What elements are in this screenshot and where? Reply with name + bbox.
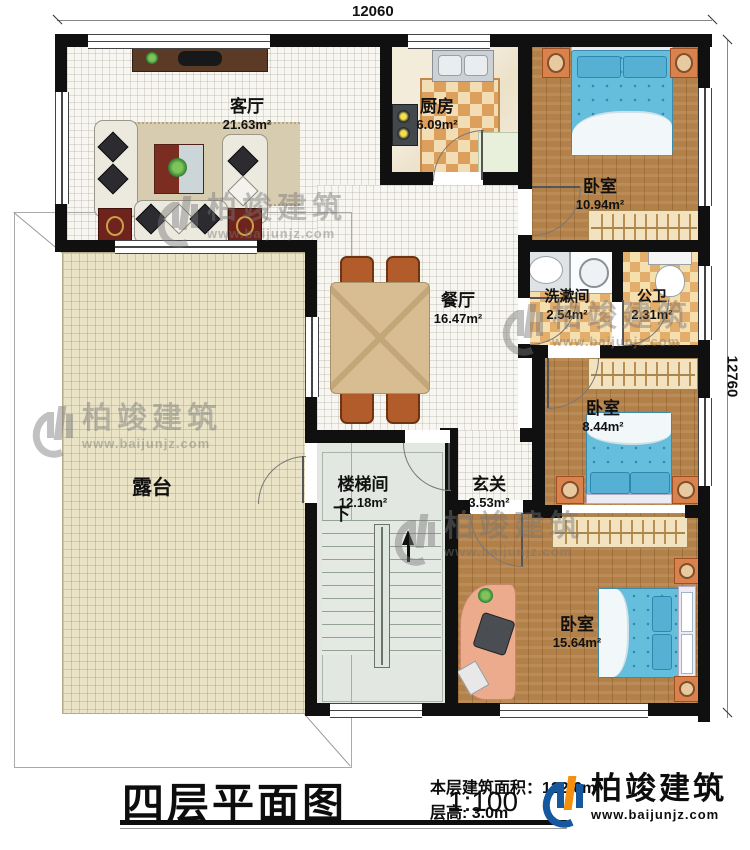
- dimension-value-right: 12760: [724, 347, 741, 407]
- bed-sheet-fold: [599, 589, 629, 677]
- watermark-text: 柏竣建筑 www.baijunjz.com: [552, 302, 692, 349]
- nightstand: [674, 676, 700, 702]
- title-underline-thin: [120, 828, 567, 829]
- watermark-name: 柏竣建筑: [552, 302, 692, 332]
- wardrobe: [588, 210, 700, 244]
- window: [698, 266, 712, 340]
- window: [408, 34, 490, 49]
- washing-machine-door: [579, 258, 609, 288]
- brand-logo-icon: [543, 772, 585, 822]
- watermark-logo-icon: [158, 192, 200, 242]
- room-label-kitchen: 厨房 6.09m²: [416, 96, 457, 134]
- dining-table: [330, 282, 430, 394]
- room-area: 10.94m²: [576, 197, 624, 213]
- room-label-foyer: 玄关 3.53m²: [468, 474, 509, 512]
- bed-sheet-fold: [572, 111, 672, 155]
- watermark-logo-icon: [503, 300, 545, 350]
- wall: [685, 505, 710, 518]
- room-name: 客厅: [223, 96, 271, 117]
- nightstand: [670, 48, 698, 78]
- headboard-panel: [681, 592, 693, 632]
- room-label-terrace: 露台: [132, 476, 172, 501]
- watermark-url: www.baijunjz.com: [444, 544, 584, 559]
- brand-logo: 柏竣建筑 www.baijunjz.com: [543, 772, 727, 822]
- window: [330, 703, 422, 718]
- brand-name: 柏竣建筑: [591, 773, 727, 804]
- watermark-url: www.baijunjz.com: [552, 334, 692, 349]
- plant: [168, 158, 187, 177]
- pillow: [630, 472, 670, 494]
- room-label-bedroom3: 卧室 15.64m²: [553, 614, 601, 652]
- brand-text: 柏竣建筑 www.baijunjz.com: [591, 773, 727, 822]
- nightstand: [556, 476, 584, 504]
- stove-burner: [397, 127, 410, 140]
- wall: [532, 428, 545, 513]
- watermark-text: 柏竣建筑 www.baijunjz.com: [82, 404, 222, 451]
- nightstand: [674, 558, 700, 584]
- watermark: 柏竣建筑 www.baijunjz.com: [503, 300, 692, 350]
- door-opening: [305, 443, 317, 503]
- wardrobe: [588, 358, 698, 390]
- room-area: 8.44m²: [582, 419, 623, 435]
- wall: [380, 34, 392, 185]
- plant: [478, 588, 493, 603]
- stove-burner: [397, 110, 410, 123]
- watermark-name: 柏竣建筑: [444, 512, 584, 542]
- plant: [146, 52, 158, 64]
- wall: [305, 430, 405, 443]
- watermark: 柏竣建筑 www.baijunjz.com: [33, 402, 222, 452]
- room-area: 16.47m²: [434, 311, 482, 327]
- room-name: 卧室: [582, 398, 623, 419]
- window: [500, 703, 648, 718]
- floor-height-text: 层高: 3.0m: [430, 799, 508, 823]
- room-name: 露台: [132, 476, 172, 501]
- door-opening: [405, 430, 450, 443]
- watermark-name: 柏竣建筑: [207, 194, 347, 224]
- bathroom-sink: [529, 256, 563, 284]
- room-name: 卧室: [553, 614, 601, 635]
- nightstand: [672, 476, 700, 504]
- pillow: [652, 634, 672, 670]
- window: [88, 34, 270, 49]
- watermark: 柏竣建筑 www.baijunjz.com: [395, 510, 584, 560]
- stairs-down-label: 下: [333, 500, 350, 525]
- window: [305, 317, 319, 397]
- watermark-text: 柏竣建筑 www.baijunjz.com: [444, 512, 584, 559]
- dimension-line-top: [57, 20, 712, 21]
- room-area: 6.09m²: [416, 117, 457, 133]
- headboard-panel: [681, 634, 693, 674]
- brand-url: www.baijunjz.com: [591, 807, 727, 822]
- watermark-url: www.baijunjz.com: [82, 436, 222, 451]
- watermark-name: 柏竣建筑: [82, 404, 222, 434]
- door-leaf: [448, 443, 450, 490]
- room-label-living: 客厅 21.63m²: [223, 96, 271, 134]
- window: [698, 398, 712, 486]
- door-opening: [518, 189, 532, 235]
- room-name: 楼梯间: [338, 474, 389, 495]
- kitchen-counter: [478, 132, 520, 174]
- room-name: 餐厅: [434, 290, 482, 311]
- window: [55, 92, 69, 204]
- room-label-bedroom2: 卧室 8.44m²: [582, 398, 623, 436]
- window: [698, 88, 712, 206]
- pillow: [623, 56, 667, 78]
- room-area: 21.63m²: [223, 117, 271, 133]
- room-label-dining: 餐厅 16.47m²: [434, 290, 482, 328]
- pillow: [652, 596, 672, 632]
- room-area: 15.64m²: [553, 635, 601, 651]
- wall: [612, 240, 623, 302]
- watermark: 柏竣建筑 www.baijunjz.com: [158, 192, 347, 242]
- nightstand: [542, 48, 570, 78]
- side-table: [98, 208, 132, 244]
- pillow: [590, 472, 630, 494]
- floor-plan: 客厅 21.63m² 厨房 6.09m² 卧室 10.94m² 餐厅 16.47…: [0, 0, 750, 850]
- watermark-logo-icon: [33, 402, 75, 452]
- door-leaf: [547, 358, 549, 408]
- dimension-value-top: 12060: [352, 3, 394, 20]
- sink-basin: [438, 55, 462, 76]
- room-name: 厨房: [416, 96, 457, 117]
- watermark-url: www.baijunjz.com: [207, 226, 347, 241]
- room-name: 卧室: [576, 176, 624, 197]
- room-label-bedroom1: 卧室 10.94m²: [576, 176, 624, 214]
- room-name: 玄关: [468, 474, 509, 495]
- tv: [178, 51, 222, 66]
- watermark-logo-icon: [395, 510, 437, 560]
- sink-basin: [464, 55, 488, 76]
- stair-rail: [374, 524, 390, 668]
- door-leaf: [532, 186, 580, 188]
- watermark-text: 柏竣建筑 www.baijunjz.com: [207, 194, 347, 241]
- bed-headboard: [586, 494, 672, 504]
- door-leaf: [302, 456, 304, 503]
- pillow: [577, 56, 621, 78]
- door-leaf: [481, 130, 483, 180]
- wall: [532, 358, 545, 430]
